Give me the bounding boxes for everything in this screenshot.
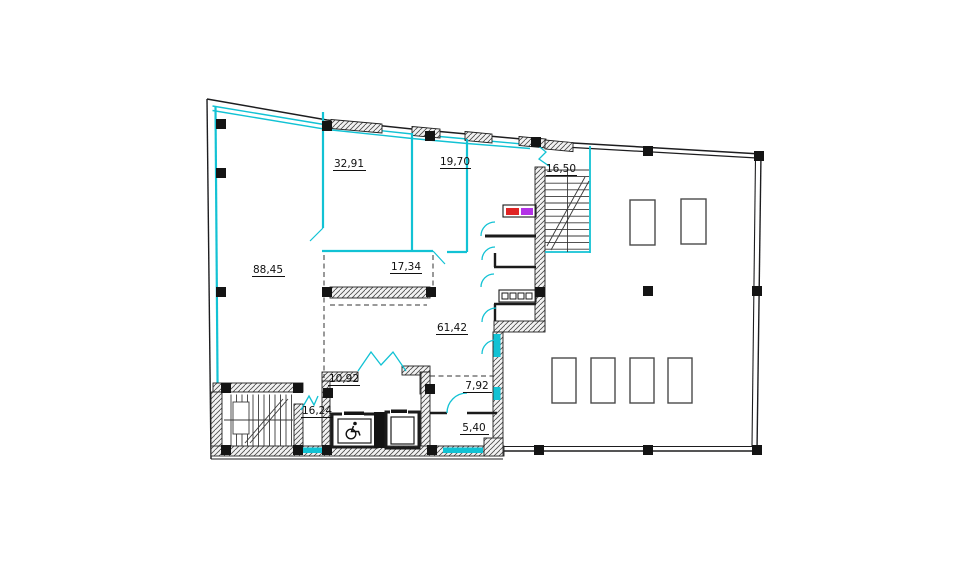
area-label-19-70: 19,70 — [440, 156, 470, 168]
window-segment — [300, 448, 323, 454]
window-segment — [443, 448, 483, 454]
desk — [552, 358, 576, 403]
elevator-shaft-divider — [374, 412, 385, 448]
desk — [591, 358, 615, 403]
area-label-17-34: 17,34 — [391, 261, 421, 273]
equipment-red — [506, 208, 519, 215]
desk — [630, 200, 655, 245]
area-label-16-24: 16,24 — [302, 405, 332, 417]
area-label-16-50: 16,50 — [546, 163, 576, 175]
equipment-violet — [521, 208, 533, 215]
paper-background — [0, 0, 967, 565]
floor-plan-canvas: 32,91 19,70 16,50 88,45 17,34 61,42 10,9… — [0, 0, 967, 565]
desk — [681, 199, 706, 244]
desk — [630, 358, 654, 403]
desk — [668, 358, 692, 403]
floor-plan-page: { "title": "ПЛАН 2 ЭТАЖА", "plan": { "ro… — [0, 0, 967, 565]
area-label-88-45: 88,45 — [253, 264, 283, 276]
area-label-61-42: 61,42 — [437, 322, 467, 334]
area-label-10-92: 10,92 — [329, 373, 359, 385]
glazing-segment — [494, 334, 501, 357]
area-label-5-40: 5,40 — [462, 422, 485, 434]
glazing-segment — [494, 387, 501, 400]
area-label-32-91: 32,91 — [334, 158, 364, 170]
area-label-7-92: 7,92 — [465, 380, 488, 392]
